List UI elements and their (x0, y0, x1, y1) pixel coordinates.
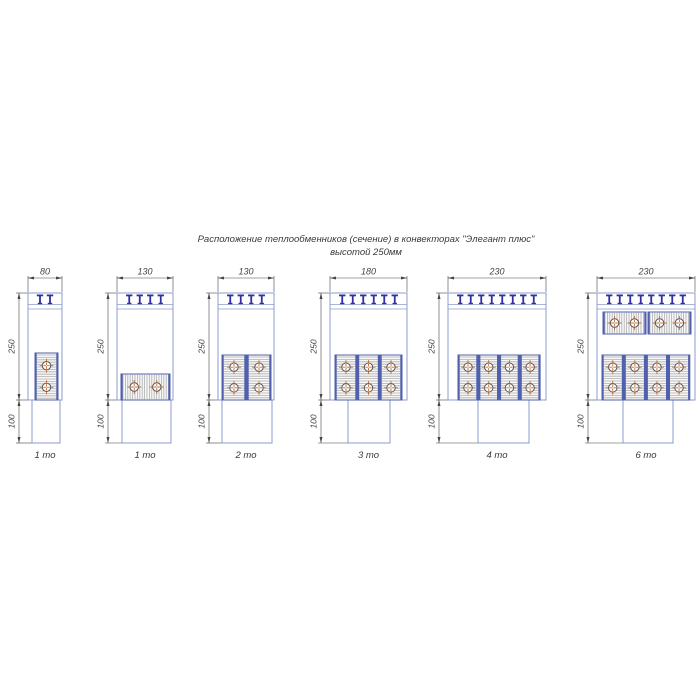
type-label-text: 2 то (234, 450, 256, 461)
lower-duct (348, 400, 390, 443)
type-label-text: 1 то (34, 450, 55, 461)
lower-duct (32, 400, 60, 443)
heat-exchanger (358, 355, 380, 400)
heat-exchanger (458, 355, 478, 400)
heat-exchanger (35, 353, 58, 400)
convector-3-figure: 1302501002 то (196, 265, 279, 465)
convector-6-figure: 2302501006 то (575, 265, 700, 465)
type-label: 6 то (635, 450, 656, 461)
width-dim-label: 130 (238, 267, 253, 277)
grille-clips (37, 295, 53, 305)
type-label-text: 4 то (486, 450, 507, 461)
heat-exchanger (222, 355, 246, 400)
lower-height-dim-label: 100 (427, 414, 437, 428)
width-dimension: 80 (28, 267, 62, 293)
heat-exchanger (499, 355, 519, 400)
width-dim-label: 80 (40, 267, 50, 277)
type-label: 4 то (486, 450, 507, 461)
grille-clips (339, 295, 398, 305)
grille-clips (227, 295, 265, 305)
width-dim-label: 180 (361, 267, 376, 277)
convector-diagrams: 802501001 то1302501001 то1302501002 то18… (0, 0, 700, 700)
lower-height-dim-label: 100 (96, 414, 106, 428)
type-label: 2 то (234, 450, 256, 461)
lower-height-dim-label: 100 (197, 414, 207, 428)
height-dim-label: 250 (7, 339, 17, 354)
height-dimension: 250100 (96, 293, 123, 443)
heat-exchanger (603, 312, 646, 334)
height-dim-label: 250 (427, 339, 437, 354)
lower-duct (623, 400, 673, 443)
heat-exchanger (380, 355, 402, 400)
lower-duct (122, 400, 171, 443)
width-dimension: 230 (597, 267, 695, 293)
convector-4-figure: 1802501003 то (308, 265, 412, 465)
heat-exchanger (646, 355, 668, 400)
type-label: 1 то (34, 450, 55, 461)
width-dim-label: 230 (637, 267, 653, 277)
type-label: 1 то (134, 450, 155, 461)
type-label: 3 то (358, 450, 379, 461)
lower-height-dim-label: 100 (7, 414, 17, 428)
width-dimension: 230 (448, 267, 546, 293)
heat-exchanger (668, 355, 690, 400)
height-dim-label: 250 (309, 339, 319, 354)
lower-duct (478, 400, 529, 443)
height-dim-label: 250 (576, 339, 586, 354)
lower-height-dim-label: 100 (309, 414, 319, 428)
lower-height-dim-label: 100 (576, 414, 586, 428)
width-dim-label: 230 (488, 267, 504, 277)
heat-exchanger (247, 355, 271, 400)
lower-duct (222, 400, 272, 443)
heat-exchanger (520, 355, 540, 400)
drawing-canvas: Расположение теплообменников (сечение) в… (0, 0, 700, 700)
grille-clips (126, 295, 164, 305)
type-label-text: 1 то (134, 450, 155, 461)
width-dimension: 130 (117, 267, 173, 293)
convector-2-figure: 1302501001 то (95, 265, 178, 465)
heat-exchanger (479, 355, 499, 400)
width-dim-label: 130 (137, 267, 152, 277)
height-dim-label: 250 (197, 339, 207, 354)
grille-clips (457, 295, 537, 305)
width-dimension: 180 (330, 267, 407, 293)
grille-clips (606, 295, 686, 305)
width-dimension: 130 (218, 267, 274, 293)
type-label-text: 3 то (358, 450, 379, 461)
convector-5-figure: 2302501004 то (426, 265, 551, 465)
height-dim-label: 250 (96, 339, 106, 354)
convector-1-figure: 802501001 то (6, 265, 67, 465)
heat-exchanger (648, 312, 691, 334)
heat-exchanger (121, 374, 170, 400)
type-label-text: 6 то (635, 450, 656, 461)
heat-exchanger (335, 355, 357, 400)
heat-exchanger (624, 355, 646, 400)
heat-exchanger (602, 355, 624, 400)
